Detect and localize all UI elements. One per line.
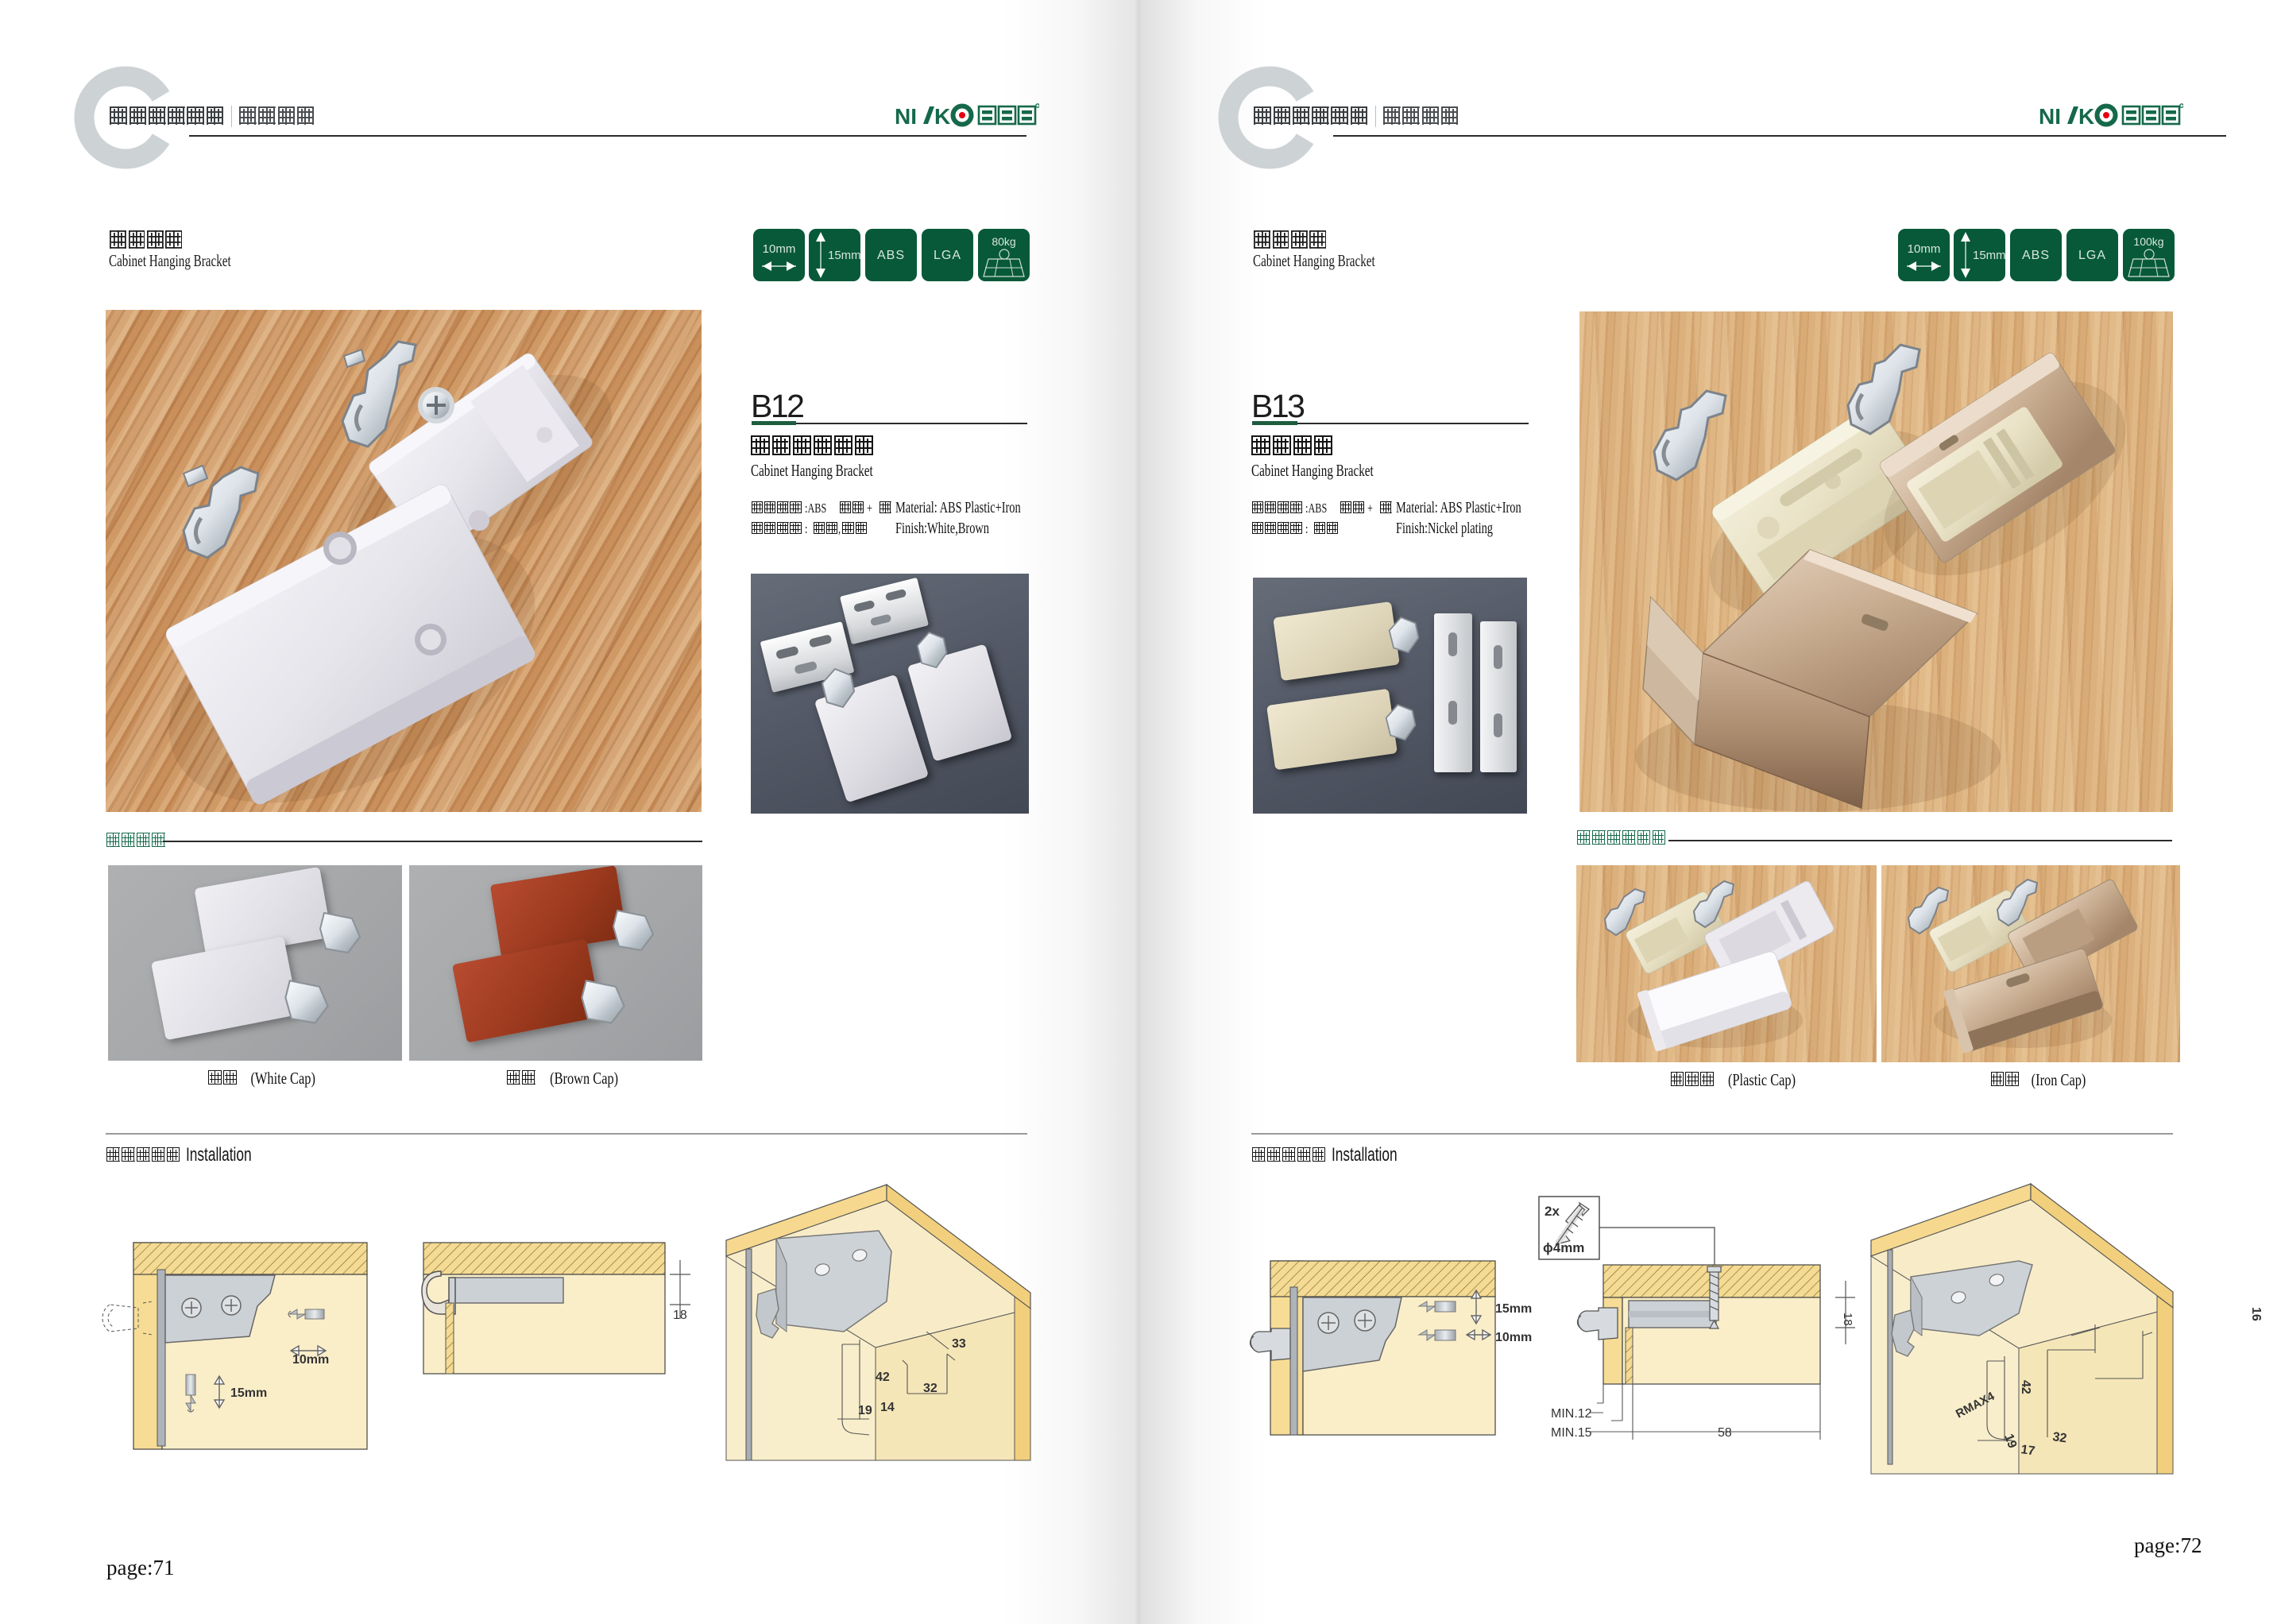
svg-text:19: 19	[858, 1404, 872, 1417]
svg-text:NI: NI	[2039, 104, 2061, 129]
svg-text:K: K	[934, 104, 950, 129]
svg-text:14: 14	[880, 1401, 895, 1414]
svg-text:18: 18	[1841, 1313, 1854, 1326]
svg-text:42: 42	[2019, 1380, 2032, 1394]
svg-text:18: 18	[673, 1309, 687, 1322]
svg-text:17: 17	[2020, 1443, 2036, 1458]
svg-text:58: 58	[1718, 1426, 1732, 1440]
svg-text:32: 32	[923, 1382, 938, 1395]
svg-text:16: 16	[2249, 1307, 2263, 1321]
svg-text:MIN.15: MIN.15	[1551, 1426, 1592, 1440]
svg-text:10mm: 10mm	[292, 1353, 329, 1367]
svg-text:33: 33	[952, 1337, 966, 1351]
svg-text:15mm: 15mm	[230, 1386, 267, 1400]
svg-text:K: K	[2078, 104, 2094, 129]
svg-text:MIN.12: MIN.12	[1551, 1407, 1592, 1421]
svg-text:NI: NI	[895, 104, 917, 129]
svg-text:42: 42	[876, 1371, 890, 1384]
svg-text:15mm: 15mm	[1495, 1302, 1532, 1316]
svg-text:10mm: 10mm	[1495, 1331, 1532, 1344]
svg-text:32: 32	[2051, 1430, 2067, 1445]
svg-text:2x: 2x	[1545, 1204, 1560, 1219]
svg-text:ϕ4mm: ϕ4mm	[1543, 1240, 1584, 1255]
